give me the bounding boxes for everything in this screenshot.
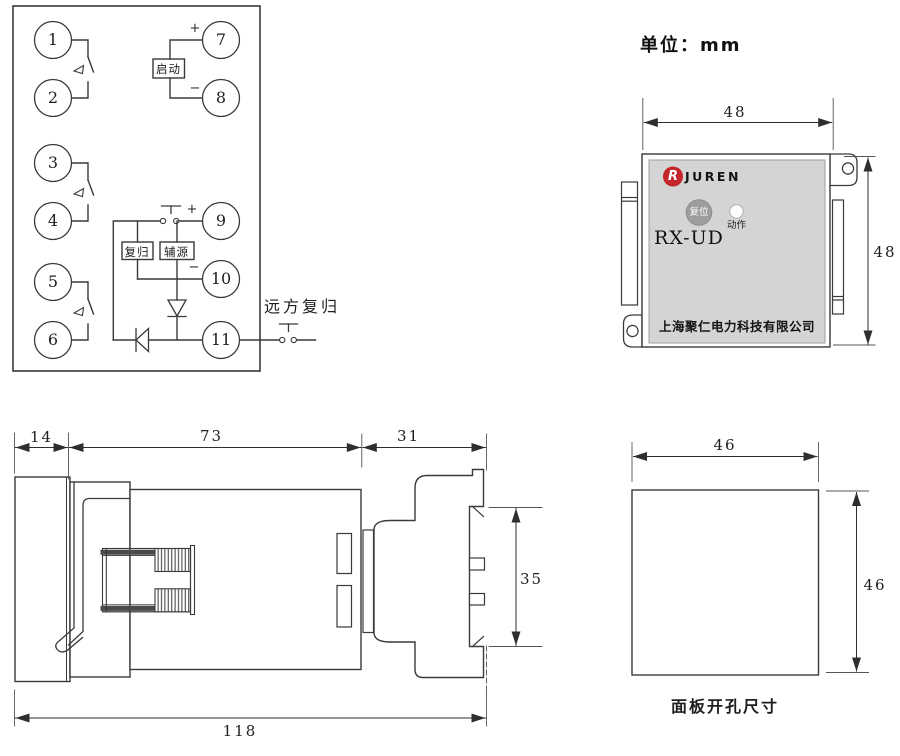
- screw-hole-icon: [842, 163, 853, 174]
- terminal-number: 11: [206, 331, 236, 349]
- contact-5-6: [72, 282, 94, 340]
- diode-left-icon: [136, 329, 149, 352]
- polarity-plus: +: [185, 203, 199, 218]
- socket-bevel: [473, 637, 484, 647]
- terminal-number: 8: [206, 89, 236, 107]
- cutout-view: [632, 442, 869, 675]
- front-section: [70, 482, 130, 677]
- screw-thread-icon: [155, 549, 191, 572]
- terminal-number: 10: [206, 270, 236, 288]
- main-body: [130, 490, 361, 670]
- socket-bevel: [473, 507, 484, 517]
- diode-down-icon: [168, 300, 186, 316]
- terminal-number: 5: [38, 273, 68, 291]
- terminal-number: 3: [38, 154, 68, 172]
- company-label: 上海聚仁电力科技有限公司: [649, 320, 825, 334]
- terminal-number: 4: [38, 212, 68, 230]
- start-box-label: 启动: [152, 63, 185, 76]
- dim-cutout-height: 46: [861, 577, 889, 594]
- polarity-minus: −: [188, 82, 202, 97]
- terminal-circles: [35, 22, 240, 359]
- brand-label: JUREN: [685, 170, 765, 184]
- contact-arrow-icon: [74, 308, 84, 316]
- button-contact-icon: [291, 337, 296, 342]
- aux-box-label: 辅源: [159, 246, 194, 259]
- aux-reset-circuit: [113, 206, 202, 352]
- contact-3-4: [72, 163, 94, 221]
- reset-button-label: 复位: [687, 208, 711, 219]
- contact-arrow-icon: [74, 189, 84, 197]
- side-view: [15, 433, 543, 726]
- diagram-border: [13, 6, 260, 371]
- contact-1-2: [72, 40, 94, 98]
- action-led-icon: [730, 205, 744, 219]
- reset-box-label: 复归: [121, 246, 153, 259]
- cutout-square: [632, 490, 819, 675]
- button-contact-icon: [160, 218, 165, 223]
- panel-face: [649, 160, 825, 343]
- cutout-caption: 面板开孔尺寸: [650, 698, 800, 716]
- screw-thread-icon: [155, 589, 191, 612]
- socket-interface: [363, 530, 374, 633]
- polarity-minus: −: [187, 261, 201, 276]
- unit-label: 单位：mm: [640, 36, 760, 57]
- dim-rear-depth: 31: [395, 428, 422, 445]
- button-contact-icon: [280, 337, 285, 342]
- dim-rear-height: 35: [518, 571, 545, 588]
- dim-panel-height: 48: [871, 244, 899, 261]
- logo-letter: R: [667, 170, 680, 185]
- socket-tab: [470, 558, 485, 570]
- model-label: RX-UD: [654, 228, 744, 250]
- cutout-dimensions: [632, 442, 869, 673]
- terminal-number: 6: [38, 331, 68, 349]
- technical-drawing-canvas: [0, 0, 900, 756]
- front-bezel: [15, 477, 70, 682]
- socket-tab: [470, 594, 485, 606]
- dim-cutout-width: 46: [711, 437, 739, 454]
- mounting-rail-right: [833, 200, 844, 314]
- dim-body-depth: 73: [198, 428, 225, 445]
- remote-reset-label: 远方复归: [258, 298, 346, 316]
- terminal-number: 7: [206, 31, 236, 49]
- contact-arrow-icon: [74, 66, 84, 74]
- polarity-plus: +: [188, 22, 202, 37]
- terminal-number: 1: [38, 31, 68, 49]
- dim-total-depth: 118: [222, 723, 258, 740]
- remote-reset-branch: [240, 324, 316, 343]
- dim-panel-width: 48: [721, 104, 749, 121]
- button-contact-icon: [174, 218, 179, 223]
- screw-hole-icon: [627, 325, 638, 336]
- relay-datasheet-drawing: 单位：mm 1 2 3 4 5 6 7 8 9 10 11 启动 复归 辅源 远…: [0, 0, 900, 756]
- dim-front-depth: 14: [28, 429, 55, 446]
- mounting-rail-left: [622, 182, 638, 305]
- rear-socket: [374, 470, 484, 678]
- terminal-number: 2: [38, 89, 68, 107]
- terminal-number: 9: [206, 212, 236, 230]
